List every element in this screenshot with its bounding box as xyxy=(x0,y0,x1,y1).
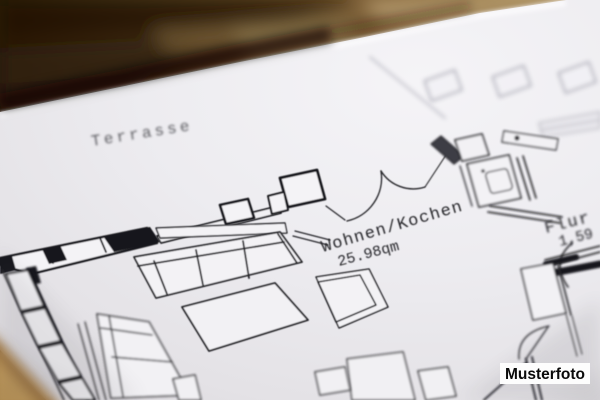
svg-text:Musterfoto: Musterfoto xyxy=(505,366,585,383)
